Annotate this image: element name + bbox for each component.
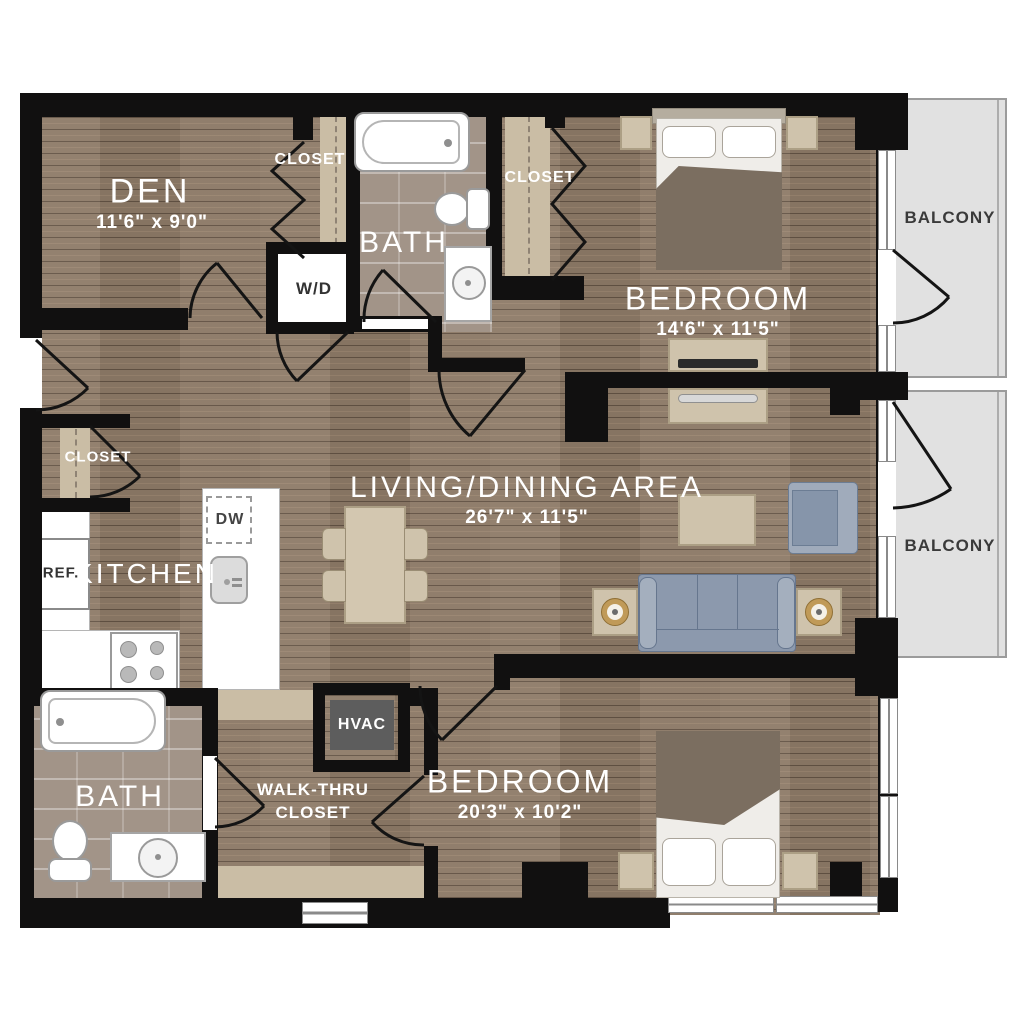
window bbox=[776, 896, 878, 913]
balcony-door-opening bbox=[878, 250, 896, 325]
bedroom-lower-dims: 20'3" x 10'2" bbox=[458, 802, 583, 824]
wall-segment bbox=[20, 408, 42, 692]
balcony-upper-label: BALCONY bbox=[904, 208, 995, 228]
wall-segment bbox=[424, 688, 438, 775]
window bbox=[880, 796, 898, 878]
wall-segment bbox=[428, 358, 525, 372]
bedroom-upper-label: BEDROOM bbox=[625, 281, 811, 318]
pillow bbox=[662, 838, 716, 886]
den-label: DEN bbox=[110, 173, 191, 212]
nightstand bbox=[786, 116, 818, 150]
entry-door-opening bbox=[20, 338, 42, 408]
living-label: LIVING/DINING AREA bbox=[350, 471, 704, 505]
sofa bbox=[638, 574, 796, 652]
wall-segment bbox=[30, 498, 130, 512]
window bbox=[302, 902, 368, 924]
wall-segment bbox=[494, 654, 510, 690]
walkthru-closet-shelf-top bbox=[212, 690, 320, 720]
wall-segment bbox=[878, 878, 898, 912]
nightstand bbox=[618, 852, 654, 890]
window bbox=[878, 400, 896, 462]
wall-segment bbox=[30, 308, 188, 330]
dining-table bbox=[344, 506, 406, 624]
bedroom-lower-label: BEDROOM bbox=[427, 764, 613, 801]
vanity-lower bbox=[110, 832, 206, 882]
laundry-label: W/D bbox=[296, 279, 332, 299]
wall-segment bbox=[545, 93, 565, 128]
wall-segment bbox=[565, 372, 608, 442]
table-lamp bbox=[601, 598, 629, 626]
wall-segment bbox=[830, 862, 862, 898]
window bbox=[878, 150, 896, 250]
media-console-living bbox=[668, 388, 768, 424]
walkthru-label-line1: WALK-THRU bbox=[257, 780, 369, 800]
wall-segment bbox=[565, 372, 896, 388]
bathtub-lower bbox=[40, 690, 166, 752]
stove bbox=[110, 632, 178, 690]
wall-segment bbox=[293, 93, 313, 140]
door-threshold bbox=[362, 319, 432, 329]
wall-segment bbox=[522, 862, 588, 900]
wall-segment bbox=[424, 846, 438, 900]
soundbar bbox=[678, 394, 758, 403]
walkthru-closet-shelf-bottom bbox=[212, 866, 430, 898]
dining-chair bbox=[322, 570, 346, 602]
door-threshold bbox=[203, 756, 217, 830]
wall-segment bbox=[30, 414, 130, 428]
wall-segment bbox=[830, 388, 860, 415]
pillow bbox=[662, 126, 716, 158]
kitchen-label: KITCHEN bbox=[74, 558, 218, 590]
refrigerator-label: REF. bbox=[43, 565, 80, 582]
dining-chair bbox=[322, 528, 346, 560]
window bbox=[878, 325, 896, 372]
closet-bedroom-floor bbox=[505, 112, 550, 278]
balcony-door-opening bbox=[878, 462, 896, 536]
bedroom-upper-dims: 14'6" x 11'5" bbox=[656, 319, 780, 341]
window bbox=[668, 896, 774, 913]
toilet-upper bbox=[434, 192, 470, 226]
wall-segment bbox=[20, 93, 42, 338]
closet-bedroom-label: CLOSET bbox=[505, 169, 576, 187]
toilet-lower bbox=[52, 820, 88, 862]
stove-burners bbox=[112, 634, 176, 688]
bed-blanket bbox=[656, 166, 782, 270]
balcony-lower bbox=[893, 390, 1007, 658]
bath-upper-label: BATH bbox=[359, 226, 449, 260]
wall-segment bbox=[486, 276, 584, 300]
wall-segment bbox=[494, 654, 878, 678]
wall-segment bbox=[855, 93, 908, 150]
table-lamp bbox=[805, 598, 833, 626]
hvac-label: HVAC bbox=[338, 716, 386, 734]
floor-plan: DEN 11'6" x 9'0" CLOSET BATH CLOSET BEDR… bbox=[0, 0, 1024, 1024]
window bbox=[880, 698, 898, 794]
tv bbox=[678, 359, 758, 368]
bathtub-upper bbox=[354, 112, 470, 172]
walkthru-label-line2: CLOSET bbox=[276, 803, 351, 823]
vanity-upper bbox=[444, 246, 492, 322]
living-dims: 26'7" x 11'5" bbox=[465, 507, 589, 529]
bath-lower-label: BATH bbox=[75, 780, 165, 814]
nightstand bbox=[620, 116, 652, 150]
media-console-bedroom bbox=[668, 338, 768, 372]
balcony-lower-label: BALCONY bbox=[904, 536, 995, 556]
wall-segment bbox=[20, 692, 34, 900]
nightstand bbox=[782, 852, 818, 890]
toilet-tank-upper bbox=[466, 188, 490, 230]
dining-chair bbox=[404, 528, 428, 560]
armchair bbox=[788, 482, 858, 554]
pillow bbox=[722, 838, 776, 886]
dining-chair bbox=[404, 570, 428, 602]
closet-entry-label: CLOSET bbox=[65, 449, 132, 466]
den-dims: 11'6" x 9'0" bbox=[96, 212, 208, 234]
dishwasher-label: DW bbox=[216, 511, 245, 529]
window bbox=[878, 536, 896, 618]
balcony-upper bbox=[893, 98, 1007, 378]
toilet-tank-lower bbox=[48, 858, 92, 882]
pillow bbox=[722, 126, 776, 158]
closet-den-label: CLOSET bbox=[275, 151, 346, 169]
